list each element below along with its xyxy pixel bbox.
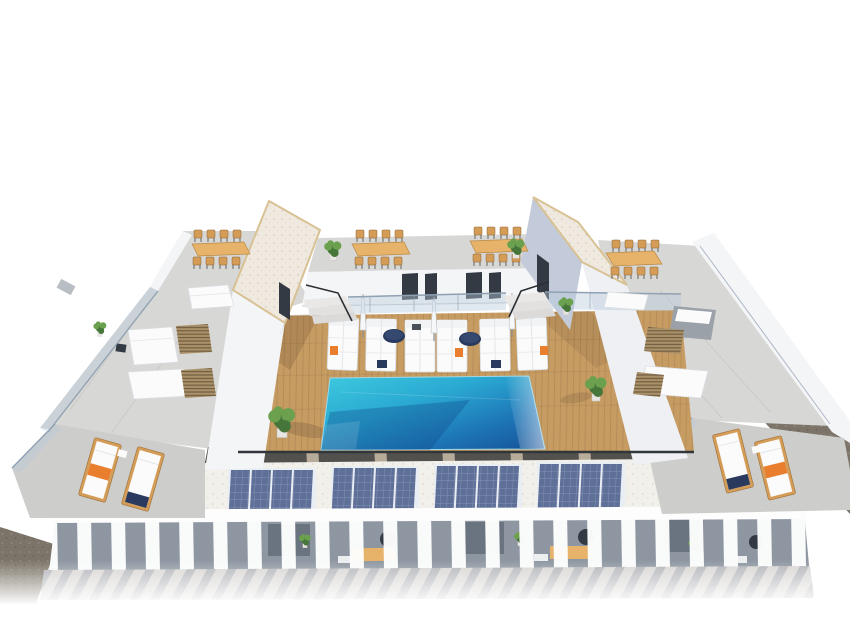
pool-steps [321,421,360,450]
solar-array-group [434,464,522,514]
dining-table [192,242,250,256]
navy-cushion [491,360,501,368]
coffee-table [115,343,126,352]
orange-towel [540,346,548,355]
daybed [128,369,190,399]
navy-cushion [377,360,387,368]
orange-towel [455,348,463,357]
dining-table [606,251,662,266]
render-stage [0,0,850,620]
vent-grate [181,368,216,398]
swimming-pool [321,376,545,450]
outdoor-sofa [128,327,178,365]
gray-cushion [412,324,421,330]
outdoor-sofa [188,285,234,309]
rooftop-render [0,0,850,620]
vent-grate [633,372,664,397]
solar-array-group [537,462,625,512]
orange-towel [330,346,338,355]
vent-grate [644,327,684,354]
daybed [604,292,648,310]
bottom-fade [0,560,850,620]
dining-table [352,242,410,256]
vent-grate [176,324,212,354]
